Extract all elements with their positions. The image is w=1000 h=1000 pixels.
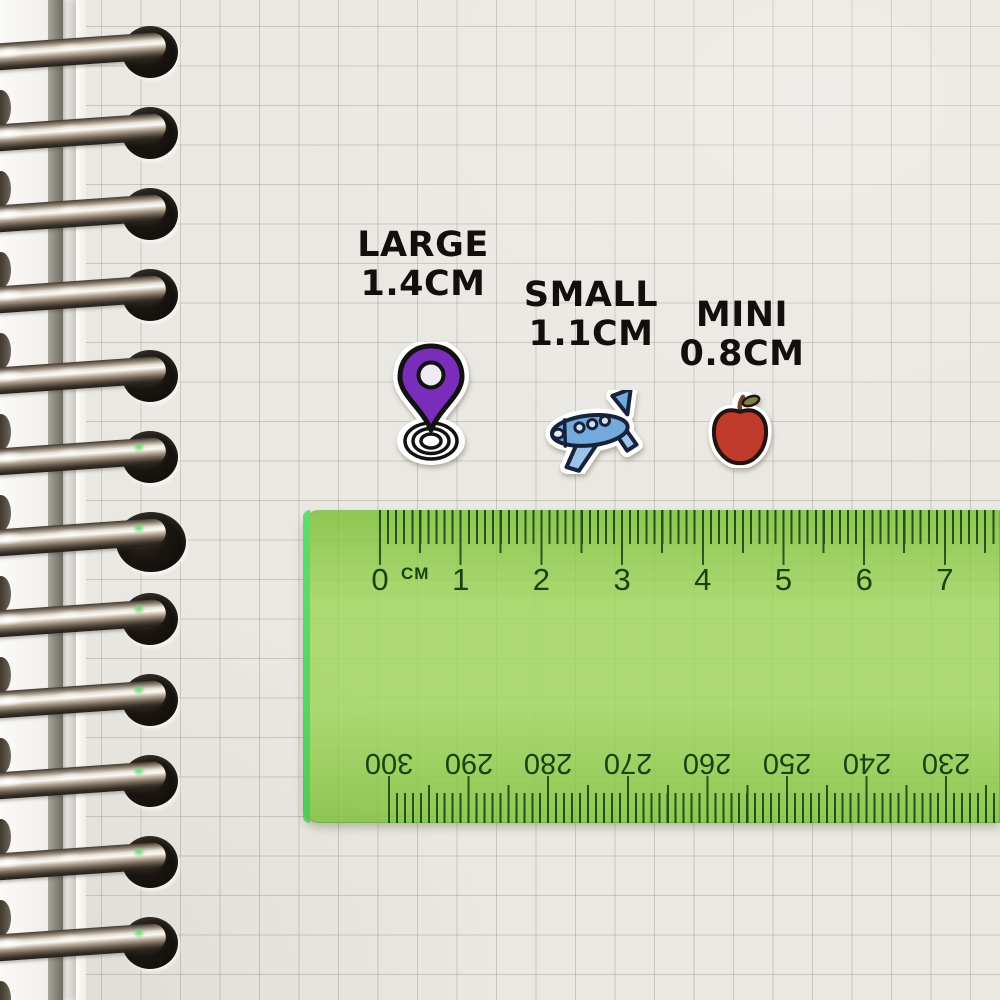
ruler-number-top: 7 — [936, 562, 953, 598]
notebook-photo: LARGE 1.4CM SMALL 1.1CM MINI 0.8CM — [0, 0, 1000, 1000]
ruler-number-top: 5 — [775, 562, 792, 598]
ruler-bottom-cm-ticks — [388, 776, 1000, 823]
ring-green-reflection — [132, 441, 146, 453]
ring-green-reflection — [132, 684, 146, 696]
label-mini-name: MINI — [668, 296, 816, 335]
ruler-number-bottom: 260 — [683, 746, 731, 779]
ruler-number-top: 3 — [613, 562, 630, 598]
coil-back-segment — [0, 657, 11, 693]
label-mini-size: 0.8CM — [668, 335, 816, 374]
coil-back-segment — [0, 495, 11, 531]
coil-back-segment — [0, 333, 11, 369]
coil-back-segment — [0, 900, 11, 936]
ruler: CM 01234567 300290280270260250240230 — [303, 510, 1000, 823]
apple-icon — [706, 392, 774, 468]
ruler-number-bottom: 230 — [922, 746, 970, 779]
airplane-icon — [536, 390, 652, 474]
ruler-number-top: 4 — [694, 562, 711, 598]
ruler-number-bottom: 280 — [524, 746, 572, 779]
label-small-name: SMALL — [518, 276, 664, 315]
coil-back-segment — [0, 738, 11, 774]
label-large: LARGE 1.4CM — [350, 226, 496, 304]
grid-paper — [86, 0, 1000, 1000]
ruler-top-cm-ticks — [379, 510, 1000, 565]
label-large-size: 1.4CM — [350, 265, 496, 304]
label-small-size: 1.1CM — [518, 315, 664, 354]
location-pin-icon — [384, 342, 478, 466]
ring-green-reflection — [132, 522, 146, 534]
ring-green-reflection — [132, 765, 146, 777]
coil-back-segment — [0, 90, 11, 126]
ring-green-reflection — [132, 927, 146, 939]
label-small: SMALL 1.1CM — [518, 276, 664, 354]
ruler-number-bottom: 300 — [365, 746, 413, 779]
ruler-number-top: 0 — [371, 562, 388, 598]
coil-back-segment — [0, 576, 11, 612]
coil-back-segment — [0, 414, 11, 450]
coil-back-segment — [0, 819, 11, 855]
ruler-unit-label: CM — [401, 564, 429, 584]
ring-green-reflection — [132, 846, 146, 858]
ruler-number-bottom: 250 — [763, 746, 811, 779]
spiral-binding — [0, 0, 220, 1000]
ruler-number-top: 6 — [856, 562, 873, 598]
coil-back-segment — [0, 171, 11, 207]
ruler-number-top: 1 — [452, 562, 469, 598]
label-mini: MINI 0.8CM — [668, 296, 816, 374]
ruler-number-bottom: 270 — [604, 746, 652, 779]
ruler-number-bottom: 290 — [444, 746, 492, 779]
ring-green-reflection — [132, 603, 146, 615]
coil-back-segment — [0, 981, 11, 1000]
ruler-number-bottom: 240 — [842, 746, 890, 779]
ruler-number-top: 2 — [533, 562, 550, 598]
label-large-name: LARGE — [350, 226, 496, 265]
coil-back-segment — [0, 252, 11, 288]
